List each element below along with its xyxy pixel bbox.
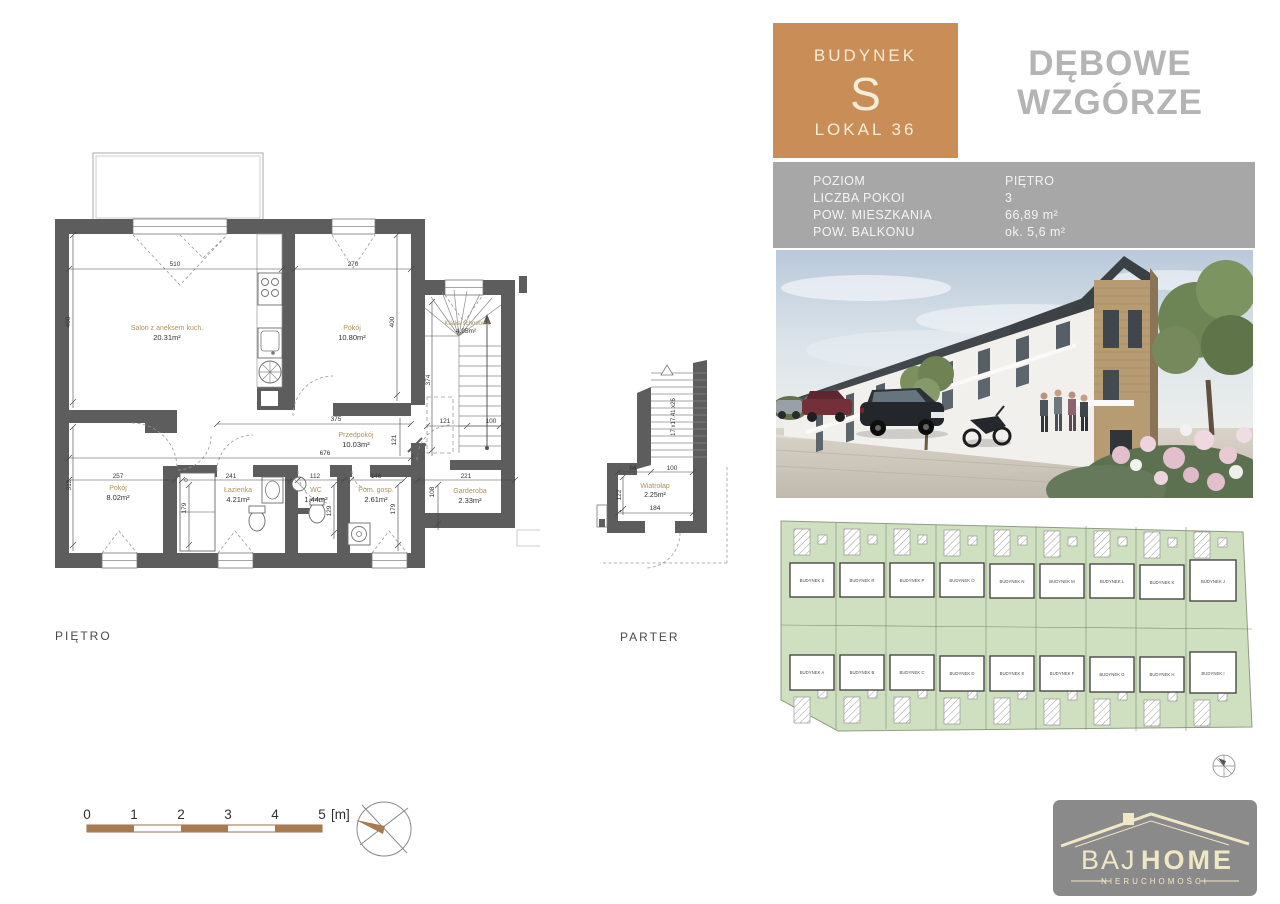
site-building-label: BUDYNEK P [900,578,925,583]
scale-tick: 5 [318,807,326,822]
unit-badge: BUDYNEK S LOKAL 36 [773,23,958,158]
room-label-klatka: Klatka schodowa [444,321,490,327]
logo-name-part1: BAJ [1081,845,1137,875]
room-label-wiatrolap: Wiatrołap [640,483,670,490]
parter-level-label: PARTER [620,630,680,644]
info-value: PIĘTRO [1005,174,1055,188]
scale-tick: 3 [224,807,232,822]
dim-100p: 100 [667,465,678,472]
site-building-label: BUDYNEK D [949,671,974,676]
room-label-garderoba: Garderoba [453,488,487,495]
room-area-salon: 20.31m² [153,333,181,342]
info-row-poziom: POZIOM PIĘTRO [773,174,1255,191]
site-building-label: BUDYNEK N [999,579,1024,584]
site-building-label: BUDYNEK O [949,578,975,583]
logo-subtitle: NIERUCHOMOŚCI [1101,877,1209,886]
info-row-balkon: POW. BALKONU ok. 5,6 m² [773,225,1255,242]
unit-info-bar: POZIOM PIĘTRO LICZBA POKOI 3 POW. MIESZK… [773,162,1255,248]
dim-122: 122 [616,489,623,500]
site-building-label: BUDYNEK F [1050,671,1075,676]
info-label: POW. MIESZKANIA [813,208,932,222]
project-title-line1: DĘBOWE [960,44,1260,83]
room-area-wiatrolap: 2.25m² [644,492,666,499]
parter-dashed-extent [600,467,727,563]
room-label-pokoj2: Pokój [109,485,127,492]
dim-179b: 179 [390,503,397,514]
room-label-wc: WC [310,487,322,494]
dim-221: 221 [461,473,472,480]
site-building-label: BUDYNEK A [800,670,825,675]
site-building-label: BUDYNEK S [800,578,825,583]
floor-plan-pietro: Salon z aneksem kuch. 20.31m² Pokój 10.8… [40,140,540,650]
dim-146: 146 [371,473,382,480]
info-row-powierzchnia: POW. MIESZKANIA 66,89 m² [773,208,1255,225]
floor-level-label: PIĘTRO [55,629,112,643]
project-title: DĘBOWE WZGÓRZE [960,44,1260,122]
site-building-label: BUDYNEK I [1201,671,1224,676]
room-label-przedpokoj: Przedpokój [338,432,373,439]
info-row-pokoje: LICZBA POKOI 3 [773,191,1255,208]
room-area-pokoj2: 8.02m² [106,493,130,502]
dim-129: 129 [326,505,333,516]
site-building-label: BUDYNEK B [850,670,875,675]
buildings-bottom-row: BUDYNEK A BUDYNEK B BUDYNEK C BUDYNEK D … [790,652,1236,693]
info-label: POZIOM [813,174,865,188]
dim-121v: 121 [391,434,398,445]
site-building-label: BUDYNEK J [1201,579,1225,584]
site-building-label: BUDYNEK M [1049,579,1075,584]
dim-400-left: 400 [65,316,72,327]
compass-rose-icon [350,795,420,865]
floor-plan-parter: 17 x17.41 x26 84 100 122 184 Wiatrołap 2… [585,355,745,655]
brochure-page: Salon z aneksem kuch. 20.31m² Pokój 10.8… [0,0,1280,904]
scale-bar: 0 1 2 3 4 5 [m] [78,806,368,840]
dim-510: 510 [170,261,181,268]
stairs-note: 17 x17.41 x26 [671,397,677,435]
room-label-salon: Salon z aneksem kuch. [131,325,203,332]
budynek-letter: S [773,67,958,121]
building-render-photo [776,250,1253,498]
walls [55,219,527,568]
dim-257: 257 [113,473,124,480]
dim-374: 374 [425,374,432,385]
room-area-pomgosp: 2.61m² [364,495,388,504]
info-value: 66,89 m² [1005,208,1058,222]
site-building-label: BUDYNEK L [1100,579,1125,584]
logo-name-part2: HOME [1141,845,1234,875]
room-area-lazienka: 4.21m² [226,495,250,504]
dim-108: 108 [429,486,436,497]
dim-121h: 121 [440,418,451,425]
info-value: 3 [1005,191,1012,205]
dim-112: 112 [310,473,321,480]
site-plan: BUDYNEK S BUDYNEK R BUDYNEK P BUDYNEK O … [770,505,1270,795]
balcony-outline [93,153,263,221]
scale-tick: 4 [271,807,279,822]
agency-logo: BAJ HOME NIERUCHOMOŚCI [1053,800,1257,896]
scale-tick: 0 [83,807,91,822]
info-value: ok. 5,6 m² [1005,225,1066,239]
dim-400-right: 400 [389,316,396,327]
room-label-pokoj1: Pokój [343,325,361,332]
lokal-label: LOKAL 36 [773,120,958,140]
site-building-label: BUDYNEK C [899,670,924,675]
room-area-pokoj1: 10.80m² [338,333,366,342]
dim-676: 676 [320,450,331,457]
dim-375: 375 [331,416,342,423]
kitchen-fixtures [257,234,282,387]
dim-84: 84 [629,465,637,472]
logo-roof-icon [1061,813,1249,847]
site-building-label: BUDYNEK H [1149,672,1174,677]
site-building-label: BUDYNEK E [1000,671,1025,676]
room-area-przedpokoj: 10.03m² [342,440,370,449]
dim-312: 312 [66,479,73,490]
buildings-top-row: BUDYNEK S BUDYNEK R BUDYNEK P BUDYNEK O … [790,560,1236,601]
project-title-line2: WZGÓRZE [960,83,1260,122]
info-label: LICZBA POKOI [813,191,905,205]
budynek-label: BUDYNEK [773,46,958,66]
dim-270: 270 [348,261,359,268]
scale-tick: 1 [130,807,138,822]
room-label-lazienka: Łazienka [224,487,252,494]
site-compass-icon [1213,755,1235,777]
site-building-label: BUDYNEK K [1150,580,1175,585]
dim-100: 100 [486,418,497,425]
site-building-label: BUDYNEK G [1099,672,1125,677]
room-area-wc: 1.44m² [304,495,328,504]
room-label-pomgosp: Pom. gosp. [358,487,393,494]
dim-179a: 179 [181,502,188,513]
site-building-label: BUDYNEK R [849,578,874,583]
dim-184: 184 [650,505,661,512]
dim-241: 241 [226,473,237,480]
room-area-klatka: 4.95m² [456,328,477,335]
room-area-garderoba: 2.33m² [458,496,482,505]
scale-unit: [m] [331,807,350,822]
scale-tick: 2 [177,807,185,822]
info-label: POW. BALKONU [813,225,915,239]
